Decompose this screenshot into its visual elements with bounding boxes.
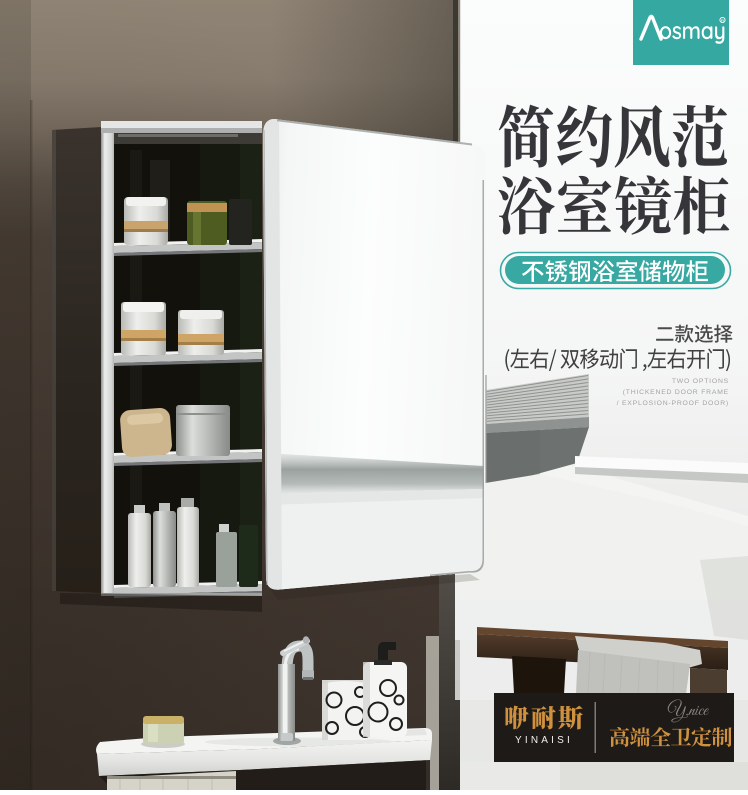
svg-text:/ EXPLOSION-PROOF DOOR): / EXPLOSION-PROOF DOOR)	[617, 400, 729, 407]
svg-text:(THICKENED DOOR FRAME: (THICKENED DOOR FRAME	[623, 389, 729, 396]
svg-text:YINAISI: YINAISI	[515, 735, 573, 746]
svg-text:TWO OPTIONS: TWO OPTIONS	[672, 378, 729, 385]
